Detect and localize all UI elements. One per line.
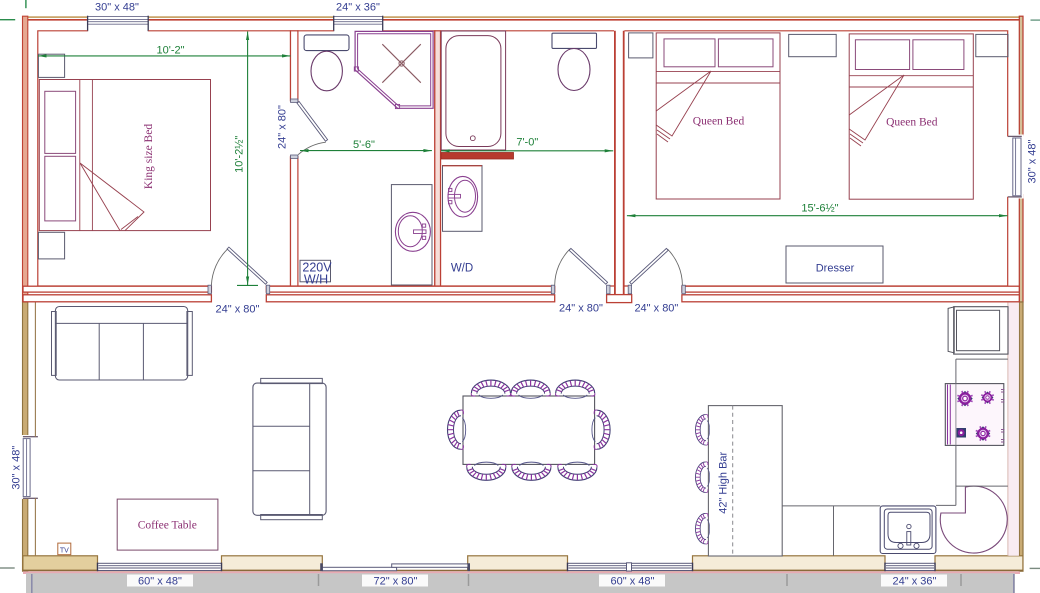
svg-text:W/D: W/D bbox=[451, 263, 473, 275]
svg-text:W/H: W/H bbox=[304, 273, 328, 287]
svg-text:60" x 48": 60" x 48" bbox=[611, 576, 655, 588]
svg-text:7'-0": 7'-0" bbox=[516, 137, 538, 149]
svg-text:24" x 36": 24" x 36" bbox=[893, 576, 937, 588]
svg-text:Queen Bed: Queen Bed bbox=[886, 117, 938, 129]
svg-text:5'-6": 5'-6" bbox=[353, 139, 375, 151]
svg-text:Coffee Table: Coffee Table bbox=[138, 520, 197, 532]
svg-text:TV: TV bbox=[60, 548, 69, 555]
svg-text:24" x 80": 24" x 80" bbox=[277, 105, 289, 149]
svg-text:10'-2½": 10'-2½" bbox=[234, 136, 246, 173]
svg-text:10'-2": 10'-2" bbox=[156, 45, 184, 57]
svg-text:24" x 80": 24" x 80" bbox=[634, 303, 678, 315]
svg-text:King size Bed: King size Bed bbox=[143, 124, 155, 189]
svg-text:30" x 48": 30" x 48" bbox=[1027, 139, 1039, 183]
svg-text:60" x 48": 60" x 48" bbox=[138, 576, 182, 588]
svg-text:42" High Bar: 42" High Bar bbox=[718, 451, 730, 513]
svg-text:24" x 80": 24" x 80" bbox=[559, 303, 603, 315]
svg-text:24" x 36": 24" x 36" bbox=[336, 2, 380, 14]
svg-text:15'-6½": 15'-6½" bbox=[801, 203, 838, 215]
svg-text:30" x 48": 30" x 48" bbox=[11, 446, 23, 490]
svg-text:Queen Bed: Queen Bed bbox=[693, 116, 745, 128]
svg-text:72" x 80": 72" x 80" bbox=[374, 576, 418, 588]
svg-text:30" x 48": 30" x 48" bbox=[95, 2, 139, 14]
svg-text:Dresser: Dresser bbox=[816, 263, 855, 275]
svg-text:24" x 80": 24" x 80" bbox=[216, 304, 260, 316]
